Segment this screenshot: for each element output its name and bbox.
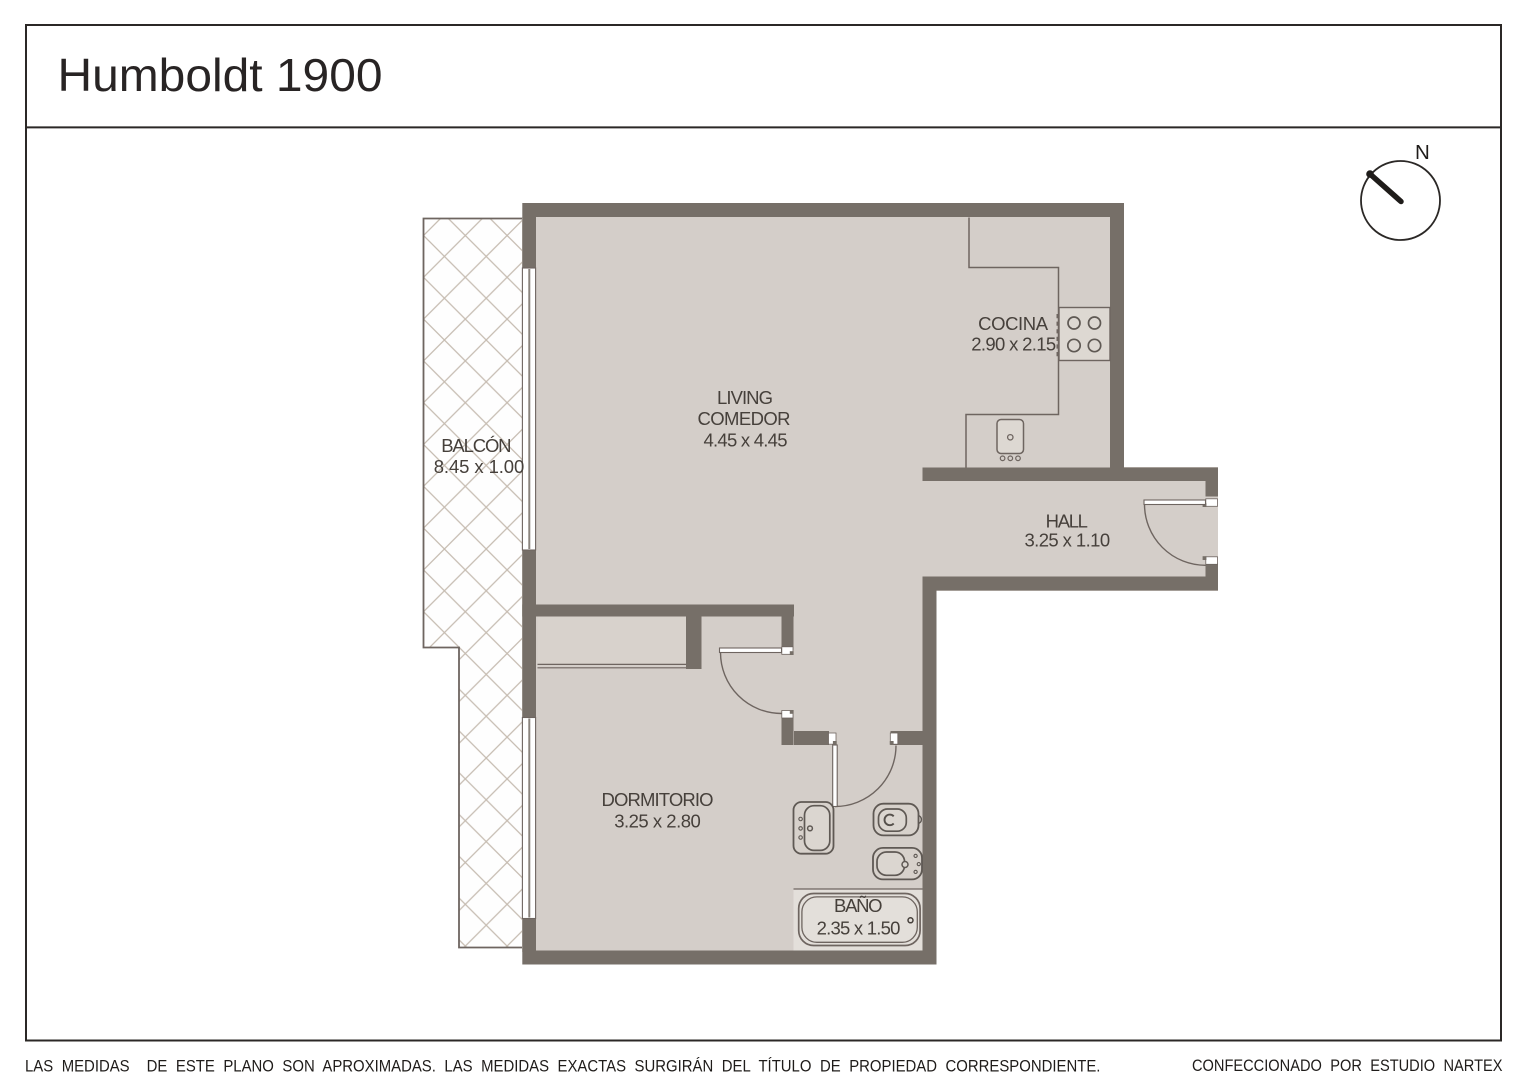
svg-text:COMEDOR: COMEDOR <box>698 408 791 429</box>
svg-text:8.45 x 1.00: 8.45 x 1.00 <box>434 456 525 477</box>
svg-text:DORMITORIO: DORMITORIO <box>602 789 714 810</box>
svg-text:COCINA: COCINA <box>978 313 1049 334</box>
svg-text:3.25 x 2.80: 3.25 x 2.80 <box>614 811 701 832</box>
svg-text:Humboldt 1900: Humboldt 1900 <box>58 49 383 101</box>
svg-text:N: N <box>1415 141 1430 164</box>
svg-text:LIVING: LIVING <box>717 387 773 408</box>
svg-text:BALCÓN: BALCÓN <box>441 435 511 456</box>
svg-text:HALL: HALL <box>1046 510 1088 531</box>
svg-text:3.25 x 1.10: 3.25 x 1.10 <box>1024 530 1110 551</box>
svg-text:2.90 x 2.15: 2.90 x 2.15 <box>971 333 1056 354</box>
svg-text:2.35 x 1.50: 2.35 x 1.50 <box>817 918 901 939</box>
svg-text:4.45 x 4.45: 4.45 x 4.45 <box>704 429 788 450</box>
svg-text:LAS MEDIDAS DE ESTE PLANO SON: LAS MEDIDAS DE ESTE PLANO SON APROXIMADA… <box>25 1057 1100 1076</box>
svg-text:BAÑO: BAÑO <box>834 895 883 916</box>
svg-text:CONFECCIONADO POR ESTUDIO NART: CONFECCIONADO POR ESTUDIO NARTEX <box>1192 1056 1503 1075</box>
